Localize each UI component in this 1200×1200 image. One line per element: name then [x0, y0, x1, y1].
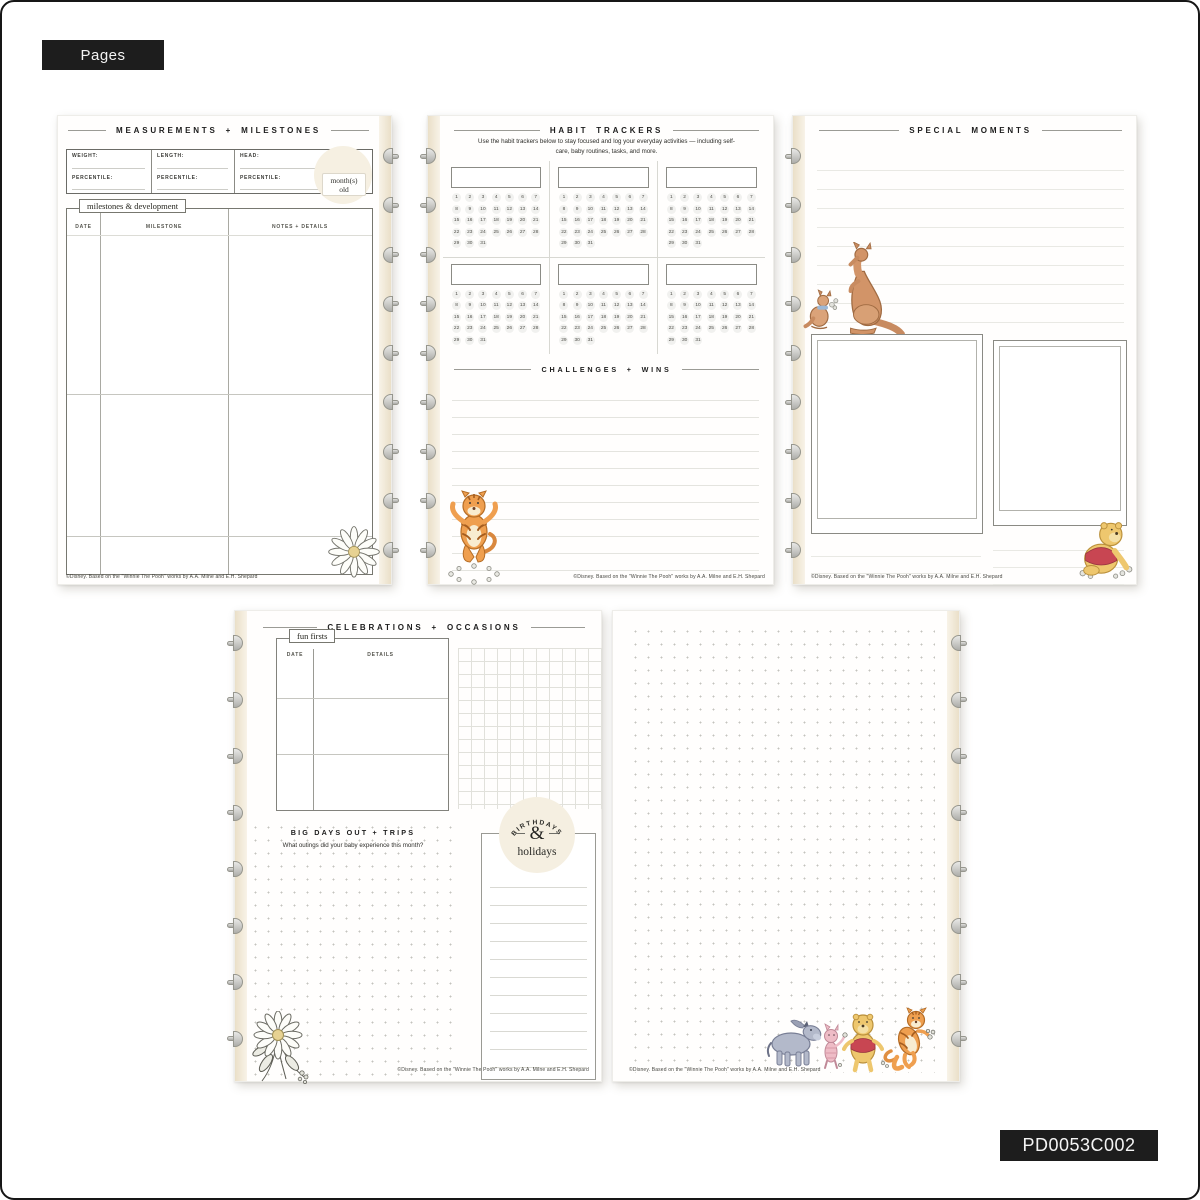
tracker-day: 24 [478, 324, 487, 333]
tracker-day: 20 [733, 216, 742, 225]
date-column-header: DATE [67, 224, 100, 230]
tracker-day: 3 [478, 193, 487, 202]
percentile-label: PERCENTILE: [72, 175, 113, 181]
tracker-day: 5 [720, 193, 729, 202]
tracker-day: 6 [625, 290, 634, 299]
fun-firsts-table: fun firsts DATE DETAILS [276, 638, 449, 811]
length-column: LENGTH: PERCENTILE: [152, 150, 235, 193]
tracker-day: 25 [707, 324, 716, 333]
tracker-day: 23 [573, 228, 582, 237]
tracker-day: 13 [518, 301, 527, 310]
milestones-table: milestones & development DATE MILESTONE … [66, 208, 373, 575]
binder-disc [951, 974, 967, 990]
copyright-text: ©Disney. Based on the "Winnie The Pooh" … [397, 1067, 589, 1073]
tracker-day: 10 [693, 205, 702, 214]
tracker-day: 3 [693, 290, 702, 299]
tracker-day: 30 [573, 239, 582, 248]
binder-disc [785, 542, 801, 558]
binder-disc [951, 635, 967, 651]
tracker-name-box [666, 264, 757, 285]
birthdays-holidays-badge: BIRTHDAYS & holidays [499, 797, 575, 873]
tracker-day: 14 [639, 205, 648, 214]
tracker-day: 21 [747, 313, 756, 322]
tracker-day: 4 [599, 193, 608, 202]
badge-dash [516, 833, 525, 834]
tracker-day: 31 [478, 239, 487, 248]
tracker-day: 31 [693, 239, 702, 248]
tracker-day: 31 [478, 336, 487, 345]
binder-discs [227, 635, 243, 1047]
tracker-day: 23 [465, 324, 474, 333]
tracker-day: 17 [478, 216, 487, 225]
tracker-day: 4 [492, 290, 501, 299]
tracker-day: 14 [747, 301, 756, 310]
tracker-day: 20 [518, 313, 527, 322]
page-habit-trackers: HABIT TRACKERS Use the habit trackers be… [427, 115, 774, 585]
binder-disc [785, 148, 801, 164]
graph-grid [458, 648, 602, 809]
binder-discs [951, 635, 967, 1047]
tracker-day: 15 [452, 216, 461, 225]
binder-disc [383, 197, 399, 213]
tracker-name-box [558, 167, 648, 188]
tracker-day: 15 [559, 216, 568, 225]
binder-disc [227, 692, 243, 708]
tracker-name-box [666, 167, 757, 188]
tracker-day: 16 [465, 216, 474, 225]
tracker-day: 24 [586, 324, 595, 333]
binder-disc [951, 861, 967, 877]
binder-disc [383, 394, 399, 410]
page-measurements-milestones: MEASUREMENTS + MILESTONES WEIGHT: PERCEN… [57, 115, 392, 585]
binder-disc [420, 148, 436, 164]
tracker-days: 1234567891011121314151617181920212223242… [664, 193, 759, 248]
tracker-name-box [451, 264, 541, 285]
tracker-day: 17 [478, 313, 487, 322]
binder-disc [420, 444, 436, 460]
tracker-day: 12 [612, 205, 621, 214]
table-row-line [277, 698, 448, 699]
months-old-badge: month(s) old [314, 146, 372, 204]
tracker-day: 19 [612, 313, 621, 322]
pages-tag: Pages [42, 40, 164, 70]
binder-disc [785, 345, 801, 361]
length-label: LENGTH: [157, 153, 184, 159]
tracker-day: 13 [518, 205, 527, 214]
tracker-day: 9 [680, 301, 689, 310]
tracker-day: 29 [667, 336, 676, 345]
binder-disc [227, 861, 243, 877]
table-row-line [67, 394, 372, 395]
tracker-days: 1234567891011121314151617181920212223242… [556, 193, 650, 248]
kanga-roo-illustration [801, 242, 905, 338]
tracker-day: 23 [680, 228, 689, 237]
tracker-day: 5 [720, 290, 729, 299]
tracker-day: 18 [599, 216, 608, 225]
tracker-day: 7 [747, 193, 756, 202]
binder-disc [420, 345, 436, 361]
tracker-day: 30 [680, 239, 689, 248]
tracker-day: 1 [452, 193, 461, 202]
binder-disc [785, 493, 801, 509]
tracker-name-box [451, 167, 541, 188]
tracker-day: 19 [720, 313, 729, 322]
habit-tracker: 1234567891011121314151617181920212223242… [443, 258, 550, 355]
fun-firsts-label: fun firsts [289, 629, 335, 643]
tracker-day: 9 [465, 205, 474, 214]
tracker-day: 21 [531, 313, 540, 322]
tracker-day: 10 [586, 301, 595, 310]
tracker-day: 14 [747, 205, 756, 214]
product-image-canvas: Pages MEASUREMENTS + MILESTONES WEIGHT: … [0, 0, 1200, 1200]
binder-disc [420, 296, 436, 312]
tracker-day: 22 [559, 228, 568, 237]
tracker-day: 3 [586, 290, 595, 299]
sku-tag-label: PD0053C002 [1022, 1135, 1135, 1156]
tracker-day: 6 [518, 193, 527, 202]
tracker-day: 26 [505, 228, 514, 237]
binder-disc [420, 394, 436, 410]
tracker-day: 21 [747, 216, 756, 225]
tracker-day: 10 [478, 205, 487, 214]
tracker-day: 8 [667, 301, 676, 310]
binder-disc [951, 918, 967, 934]
tracker-day: 27 [625, 228, 634, 237]
tracker-day: 7 [747, 290, 756, 299]
tracker-day: 24 [478, 228, 487, 237]
tracker-day: 7 [531, 193, 540, 202]
tracker-day: 27 [518, 228, 527, 237]
tracker-day: 27 [733, 228, 742, 237]
habit-tracker: 1234567891011121314151617181920212223242… [658, 161, 765, 258]
tracker-day: 26 [720, 324, 729, 333]
tracker-day: 16 [573, 313, 582, 322]
tracker-day: 24 [693, 324, 702, 333]
sku-tag: PD0053C002 [1000, 1130, 1158, 1161]
habit-tracker: 1234567891011121314151617181920212223242… [658, 258, 765, 355]
tracker-day: 4 [599, 290, 608, 299]
tracker-day: 16 [680, 216, 689, 225]
tracker-day: 20 [625, 216, 634, 225]
tracker-day: 28 [639, 324, 648, 333]
tracker-day: 17 [586, 313, 595, 322]
tracker-day: 7 [639, 193, 648, 202]
copyright-text: ©Disney. Based on the "Winnie The Pooh" … [629, 1067, 821, 1073]
binder-disc [227, 918, 243, 934]
tracker-day: 25 [599, 228, 608, 237]
tracker-day: 20 [518, 216, 527, 225]
tracker-day: 31 [586, 336, 595, 345]
binder-disc [420, 247, 436, 263]
binder-disc [951, 1031, 967, 1047]
notes-column-header: NOTES + DETAILS [228, 224, 372, 230]
tracker-day: 26 [720, 228, 729, 237]
tracker-name-box [558, 264, 648, 285]
writing-lines [490, 870, 587, 1071]
tracker-day: 3 [586, 193, 595, 202]
tracker-day: 16 [680, 313, 689, 322]
tracker-day: 9 [573, 205, 582, 214]
tracker-day: 19 [612, 216, 621, 225]
tracker-day: 10 [693, 301, 702, 310]
tracker-day: 15 [667, 216, 676, 225]
weight-label: WEIGHT: [72, 153, 98, 159]
tracker-day: 30 [465, 239, 474, 248]
page-title-text: MEASUREMENTS + MILESTONES [116, 126, 321, 135]
tracker-day: 6 [733, 290, 742, 299]
tracker-day: 6 [625, 193, 634, 202]
tracker-day: 8 [452, 205, 461, 214]
milestone-column-header: MILESTONE [100, 224, 228, 230]
tracker-day: 27 [625, 324, 634, 333]
tracker-day: 14 [531, 301, 540, 310]
tracker-day: 29 [559, 336, 568, 345]
tracker-day: 25 [599, 324, 608, 333]
page-title: HABIT TRACKERS [454, 126, 759, 135]
tracker-day: 15 [559, 313, 568, 322]
page-title-text: SPECIAL MOMENTS [909, 126, 1032, 135]
tracker-day: 11 [707, 301, 716, 310]
table-divider [313, 649, 314, 810]
months-old-line2: old [339, 185, 349, 194]
tracker-days: 1234567891011121314151617181920212223242… [449, 290, 543, 345]
tracker-day: 9 [465, 301, 474, 310]
tracker-day: 23 [680, 324, 689, 333]
binder-disc [227, 1031, 243, 1047]
pooh-illustration [1072, 518, 1138, 580]
tracker-day: 16 [573, 216, 582, 225]
tracker-day: 7 [639, 290, 648, 299]
tracker-day: 25 [707, 228, 716, 237]
tracker-day: 23 [573, 324, 582, 333]
binder-disc [951, 748, 967, 764]
tracker-day: 18 [492, 216, 501, 225]
page-subtitle: Use the habit trackers below to stay foc… [472, 137, 741, 156]
habit-tracker: 1234567891011121314151617181920212223242… [550, 258, 657, 355]
table-row-line [67, 235, 372, 236]
tracker-day: 14 [639, 301, 648, 310]
badge-dash [549, 833, 558, 834]
months-old-line1: month(s) [330, 176, 357, 185]
tracker-day: 5 [505, 290, 514, 299]
big-days-subtitle: What outings did your baby experience th… [249, 842, 457, 849]
tracker-day: 25 [492, 228, 501, 237]
tracker-day: 19 [505, 216, 514, 225]
tracker-days: 1234567891011121314151617181920212223242… [664, 290, 759, 345]
page-title-text: HABIT TRACKERS [550, 126, 663, 135]
tracker-day: 18 [707, 216, 716, 225]
tracker-day: 27 [518, 324, 527, 333]
tracker-day: 10 [586, 205, 595, 214]
binder-disc [420, 493, 436, 509]
tracker-day: 16 [465, 313, 474, 322]
tracker-day: 19 [505, 313, 514, 322]
binder-disc [383, 247, 399, 263]
tracker-day: 21 [531, 216, 540, 225]
page-title-text: CELEBRATIONS + OCCASIONS [327, 623, 520, 632]
tracker-day: 10 [478, 301, 487, 310]
tracker-day: 2 [573, 290, 582, 299]
weight-column: WEIGHT: PERCENTILE: [67, 150, 152, 193]
daisy-icon [328, 524, 380, 578]
challenges-wins-text: CHALLENGES + WINS [541, 365, 671, 374]
tracker-day: 29 [452, 336, 461, 345]
tracker-day: 5 [505, 193, 514, 202]
tracker-day: 4 [707, 290, 716, 299]
page-celebrations-occasions: CELEBRATIONS + OCCASIONS fun firsts DATE… [234, 610, 602, 1082]
tracker-days: 1234567891011121314151617181920212223242… [556, 290, 650, 345]
binder-disc [420, 197, 436, 213]
page-title: SPECIAL MOMENTS [819, 126, 1122, 135]
binder-disc [383, 542, 399, 558]
habit-tracker-grid: 1234567891011121314151617181920212223242… [443, 161, 765, 354]
table-divider [100, 209, 101, 574]
tracker-day: 30 [573, 336, 582, 345]
tracker-day: 8 [559, 301, 568, 310]
tracker-day: 15 [452, 313, 461, 322]
binder-disc [383, 345, 399, 361]
page-title: MEASUREMENTS + MILESTONES [68, 126, 369, 135]
binder-disc [227, 635, 243, 651]
binder-disc [383, 444, 399, 460]
challenges-wins-title: CHALLENGES + WINS [454, 365, 759, 374]
tracker-day: 24 [693, 228, 702, 237]
percentile-label: PERCENTILE: [157, 175, 198, 181]
table-row-line [67, 536, 372, 537]
tracker-day: 15 [667, 313, 676, 322]
binder-disc [785, 394, 801, 410]
tracker-day: 5 [612, 193, 621, 202]
binder-disc [951, 805, 967, 821]
tracker-day: 11 [492, 301, 501, 310]
tracker-day: 8 [452, 301, 461, 310]
details-column-header: DETAILS [313, 652, 448, 658]
tracker-day: 4 [492, 193, 501, 202]
tracker-day: 8 [559, 205, 568, 214]
tracker-day: 13 [625, 205, 634, 214]
badge-holidays-text: holidays [499, 846, 575, 858]
tracker-day: 17 [586, 216, 595, 225]
tracker-day: 28 [639, 228, 648, 237]
binder-disc [227, 805, 243, 821]
binder-disc [951, 692, 967, 708]
tracker-day: 1 [452, 290, 461, 299]
tracker-day: 23 [465, 228, 474, 237]
tracker-day: 2 [465, 193, 474, 202]
tracker-day: 17 [693, 313, 702, 322]
binder-disc [785, 197, 801, 213]
tracker-day: 13 [733, 205, 742, 214]
tracker-day: 6 [518, 290, 527, 299]
tracker-day: 4 [707, 193, 716, 202]
tracker-day: 3 [478, 290, 487, 299]
binder-disc [420, 542, 436, 558]
binder-discs [420, 148, 436, 558]
tracker-day: 26 [505, 324, 514, 333]
tracker-days: 1234567891011121314151617181920212223242… [449, 193, 543, 248]
tracker-day: 28 [747, 228, 756, 237]
tracker-day: 8 [667, 205, 676, 214]
tracker-day: 20 [733, 313, 742, 322]
tracker-day: 30 [465, 336, 474, 345]
tracker-day: 26 [612, 228, 621, 237]
tracker-day: 7 [531, 290, 540, 299]
binder-disc [383, 296, 399, 312]
binder-disc [785, 296, 801, 312]
tracker-day: 1 [667, 193, 676, 202]
binder-disc [785, 247, 801, 263]
tracker-day: 12 [612, 301, 621, 310]
tracker-day: 28 [531, 324, 540, 333]
tracker-day: 25 [492, 324, 501, 333]
tracker-day: 22 [667, 324, 676, 333]
pooh-friends-parade-illustration [765, 1001, 937, 1073]
tracker-day: 1 [667, 290, 676, 299]
tracker-day: 11 [707, 205, 716, 214]
big-days-title: BIG DAYS OUT + TRIPS [249, 828, 457, 837]
tracker-day: 2 [680, 193, 689, 202]
tracker-day: 11 [599, 301, 608, 310]
tracker-day: 12 [720, 301, 729, 310]
head-label: HEAD: [240, 153, 259, 159]
tracker-day: 13 [733, 301, 742, 310]
tracker-day: 9 [680, 205, 689, 214]
tracker-day: 2 [465, 290, 474, 299]
page-dot-grid: ©Disney. Based on the "Winnie The Pooh" … [612, 610, 960, 1082]
binder-disc [383, 148, 399, 164]
tracker-day: 18 [707, 313, 716, 322]
tracker-day: 5 [612, 290, 621, 299]
tracker-day: 29 [452, 239, 461, 248]
binder-disc [227, 748, 243, 764]
binder-disc [227, 974, 243, 990]
tracker-day: 22 [667, 228, 676, 237]
tracker-day: 13 [625, 301, 634, 310]
writing-lines [811, 540, 981, 578]
tracker-day: 18 [599, 313, 608, 322]
photo-frame [811, 334, 983, 534]
binder-discs [785, 148, 801, 558]
tracker-day: 1 [559, 193, 568, 202]
tracker-day: 22 [559, 324, 568, 333]
tracker-day: 17 [693, 216, 702, 225]
date-column-header: DATE [277, 652, 313, 658]
tracker-day: 22 [452, 228, 461, 237]
tracker-day: 18 [492, 313, 501, 322]
tracker-day: 29 [667, 239, 676, 248]
habit-tracker: 1234567891011121314151617181920212223242… [550, 161, 657, 258]
tracker-day: 24 [586, 228, 595, 237]
tracker-day: 28 [747, 324, 756, 333]
tracker-day: 12 [720, 205, 729, 214]
tracker-day: 12 [505, 301, 514, 310]
table-divider [228, 209, 229, 574]
tigger-illustration [438, 482, 516, 586]
milestones-section-label: milestones & development [79, 199, 186, 213]
percentile-label: PERCENTILE: [240, 175, 281, 181]
pages-tag-label: Pages [80, 47, 125, 64]
tracker-day: 30 [680, 336, 689, 345]
tracker-day: 31 [586, 239, 595, 248]
tracker-day: 19 [720, 216, 729, 225]
binder-disc [383, 493, 399, 509]
tracker-day: 2 [573, 193, 582, 202]
tracker-day: 21 [639, 313, 648, 322]
tracker-day: 20 [625, 313, 634, 322]
tracker-day: 29 [559, 239, 568, 248]
habit-tracker: 1234567891011121314151617181920212223242… [443, 161, 550, 258]
tracker-day: 22 [452, 324, 461, 333]
